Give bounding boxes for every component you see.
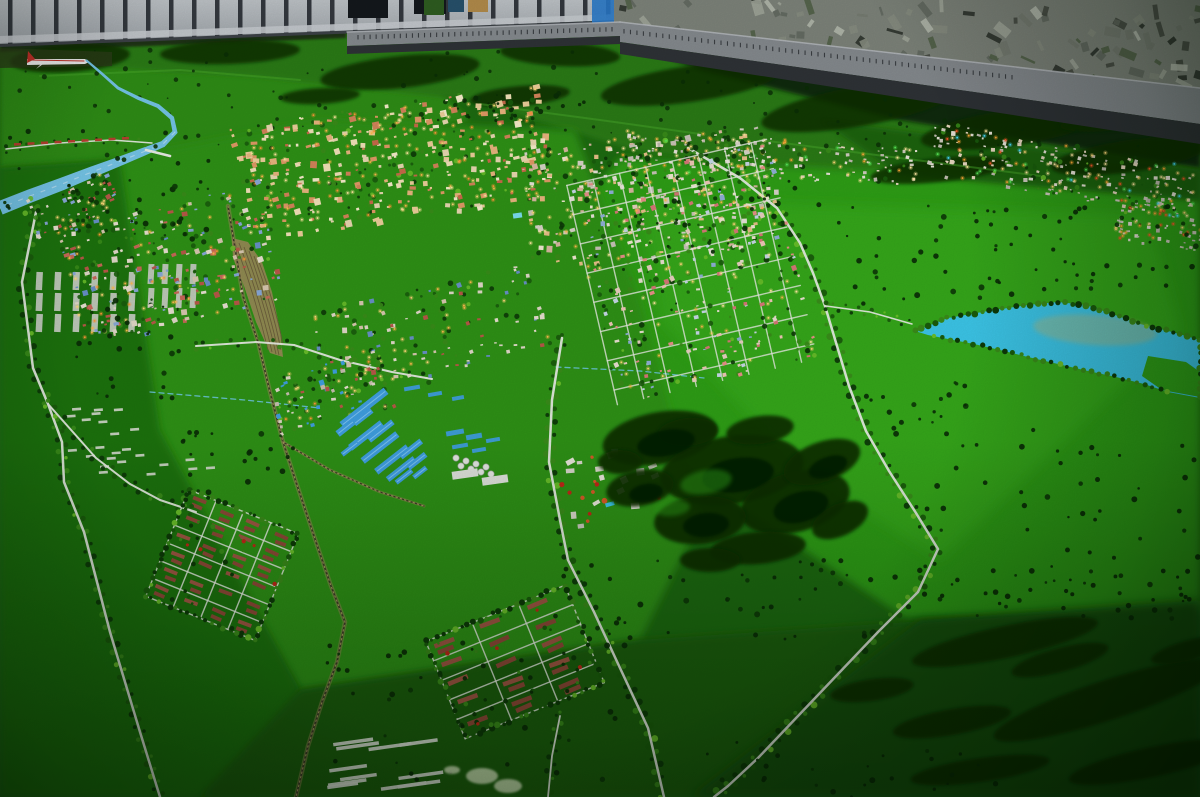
exhibition-photo xyxy=(0,0,1200,797)
photo-vignette xyxy=(0,0,1200,797)
film-grain xyxy=(0,0,1200,797)
city-model-photo xyxy=(0,0,1200,797)
